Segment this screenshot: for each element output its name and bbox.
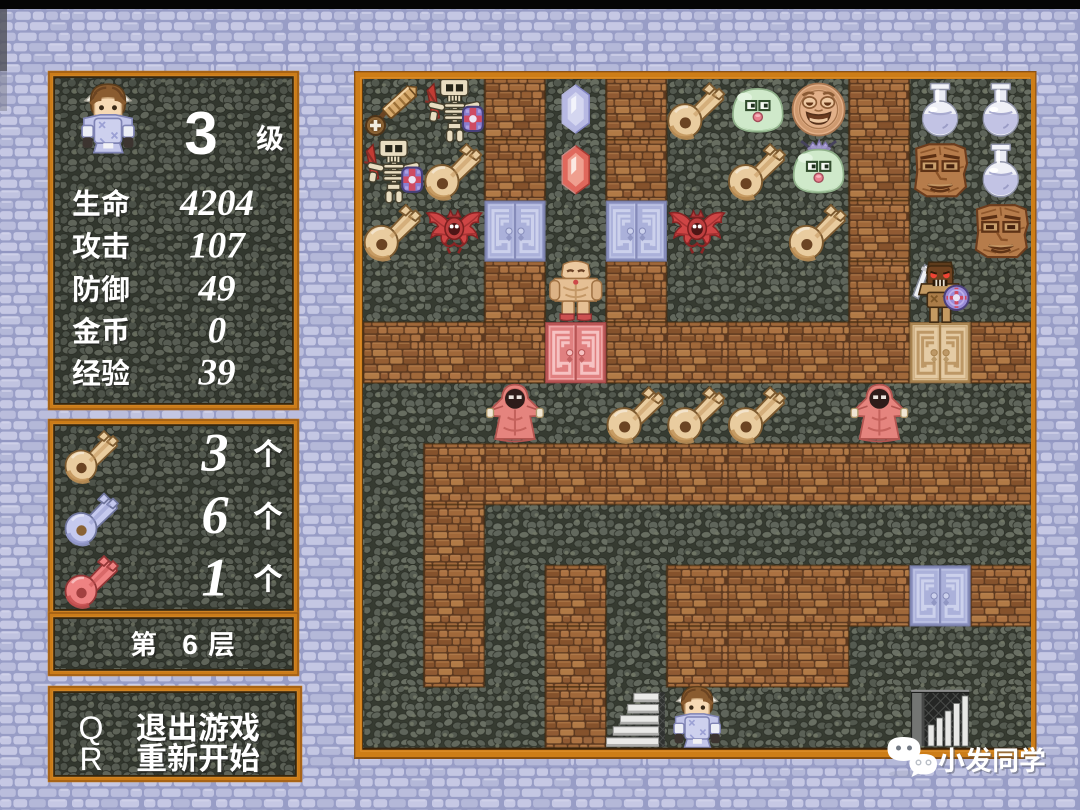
svg-text:107: 107 bbox=[189, 226, 246, 267]
svg-text:39: 39 bbox=[198, 353, 236, 394]
svg-text:1: 1 bbox=[202, 548, 229, 608]
svg-text:4204: 4204 bbox=[179, 183, 254, 224]
svg-text:6: 6 bbox=[202, 485, 229, 545]
svg-text:0: 0 bbox=[208, 311, 227, 352]
svg-text:3: 3 bbox=[201, 423, 229, 483]
svg-text:R: R bbox=[79, 741, 102, 777]
svg-text:49: 49 bbox=[198, 269, 236, 310]
svg-text:6: 6 bbox=[182, 629, 198, 660]
svg-text:3: 3 bbox=[184, 100, 217, 167]
